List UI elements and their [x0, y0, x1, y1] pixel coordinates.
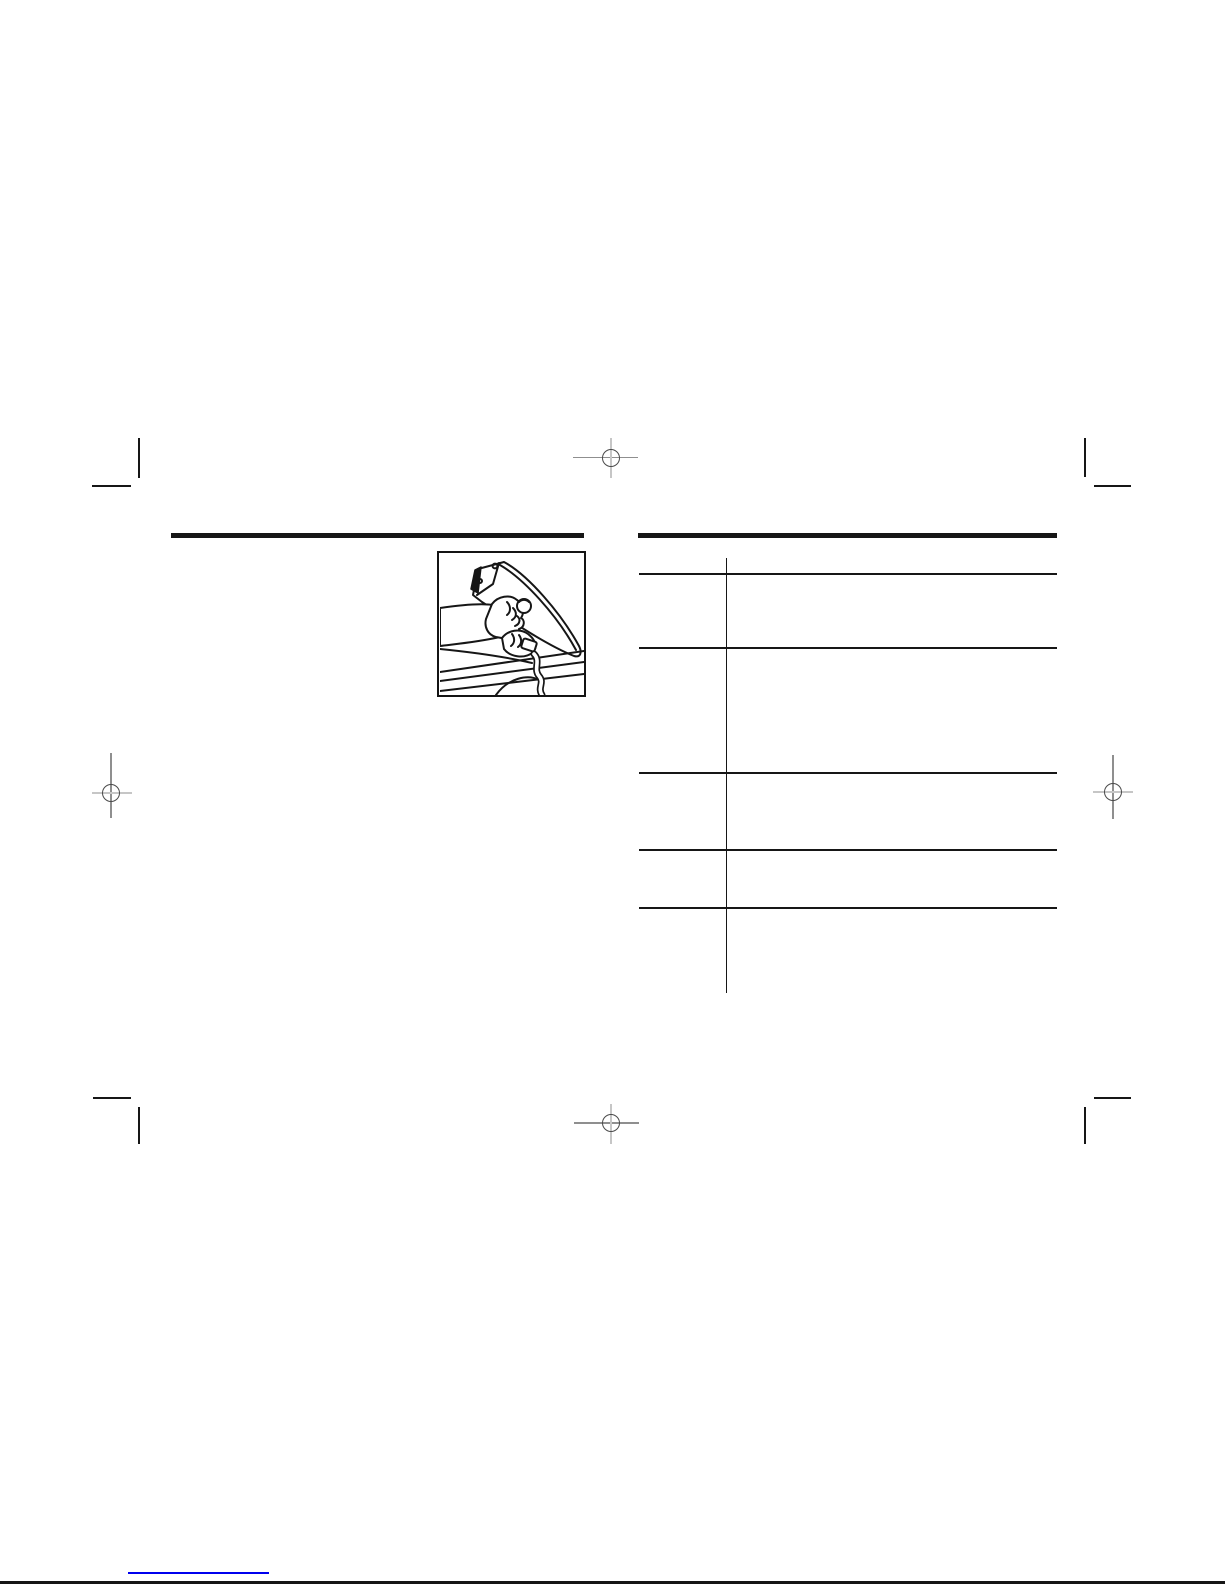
- page-bottom-edge-rule: [0, 1581, 1225, 1584]
- table-row-divider-1: [639, 573, 1057, 575]
- crop-mark-bottom-right-vertical: [1084, 1107, 1086, 1144]
- registration-mark-top-center-circle: [602, 449, 620, 467]
- table-row-divider-4: [639, 849, 1057, 851]
- registration-mark-left-circle: [102, 784, 120, 802]
- manual-page: [0, 0, 1225, 1585]
- crop-mark-top-right-horizontal: [1094, 485, 1131, 487]
- registration-mark-bottom-center-circle: [602, 1114, 620, 1132]
- footer-link[interactable]: [128, 1572, 269, 1574]
- left-section-rule: [171, 533, 584, 538]
- table-row-divider-2: [639, 647, 1057, 649]
- crop-mark-top-left-vertical: [138, 438, 140, 478]
- registration-mark-right-circle: [1104, 783, 1122, 801]
- crop-mark-bottom-right-horizontal: [1094, 1097, 1131, 1099]
- table-row-divider-3: [639, 772, 1057, 774]
- table-row-divider-5: [639, 907, 1057, 909]
- right-section-rule: [638, 533, 1057, 538]
- crop-mark-bottom-left-vertical: [138, 1107, 140, 1144]
- iron-illustration: [440, 554, 584, 695]
- crop-mark-top-left-horizontal: [92, 485, 131, 487]
- table-column-divider: [726, 558, 728, 993]
- crop-mark-top-right-vertical: [1084, 438, 1086, 477]
- figure-box: [437, 551, 586, 697]
- crop-mark-bottom-left-horizontal: [93, 1097, 131, 1099]
